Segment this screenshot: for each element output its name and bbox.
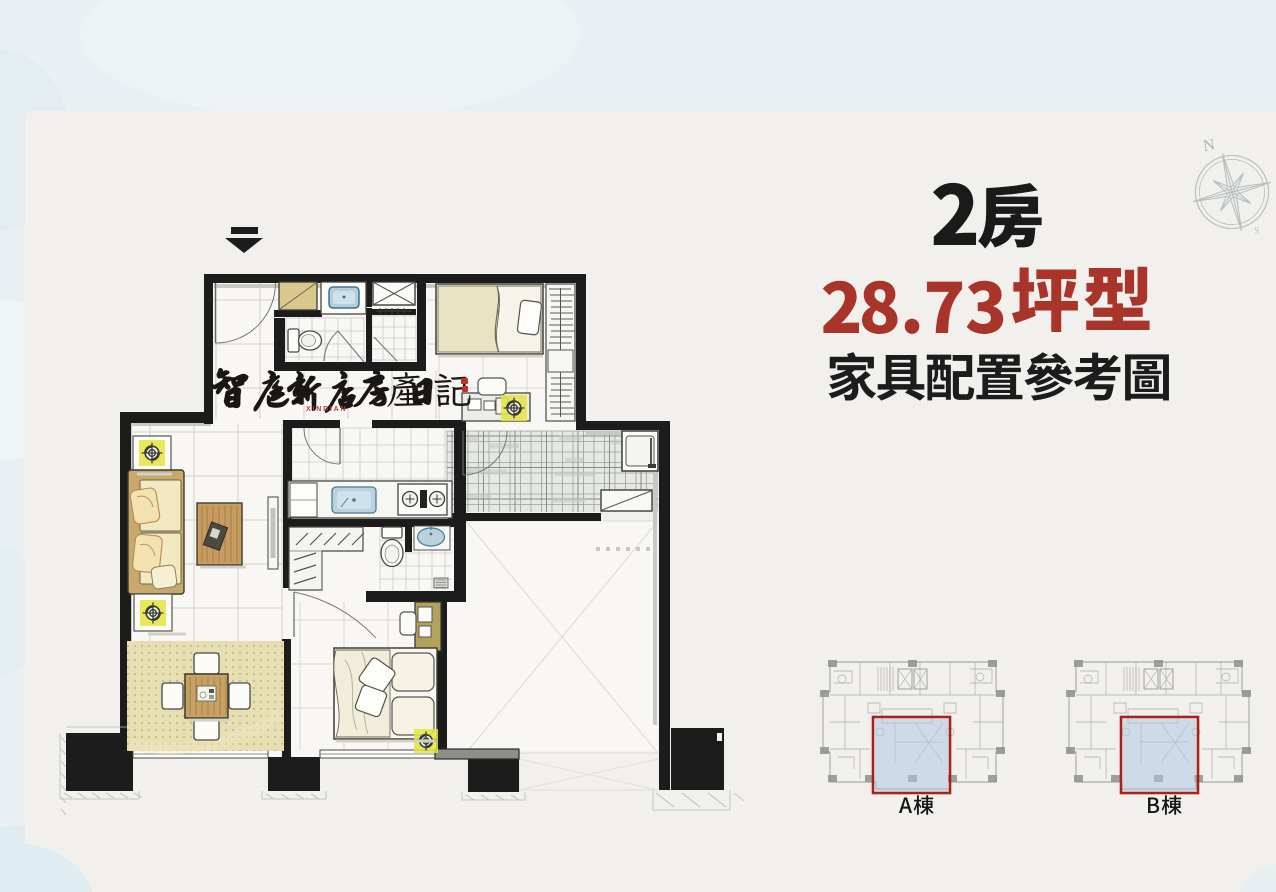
svg-text:S: S: [1254, 226, 1260, 237]
svg-text:XINDIAN: XINDIAN: [306, 406, 347, 413]
